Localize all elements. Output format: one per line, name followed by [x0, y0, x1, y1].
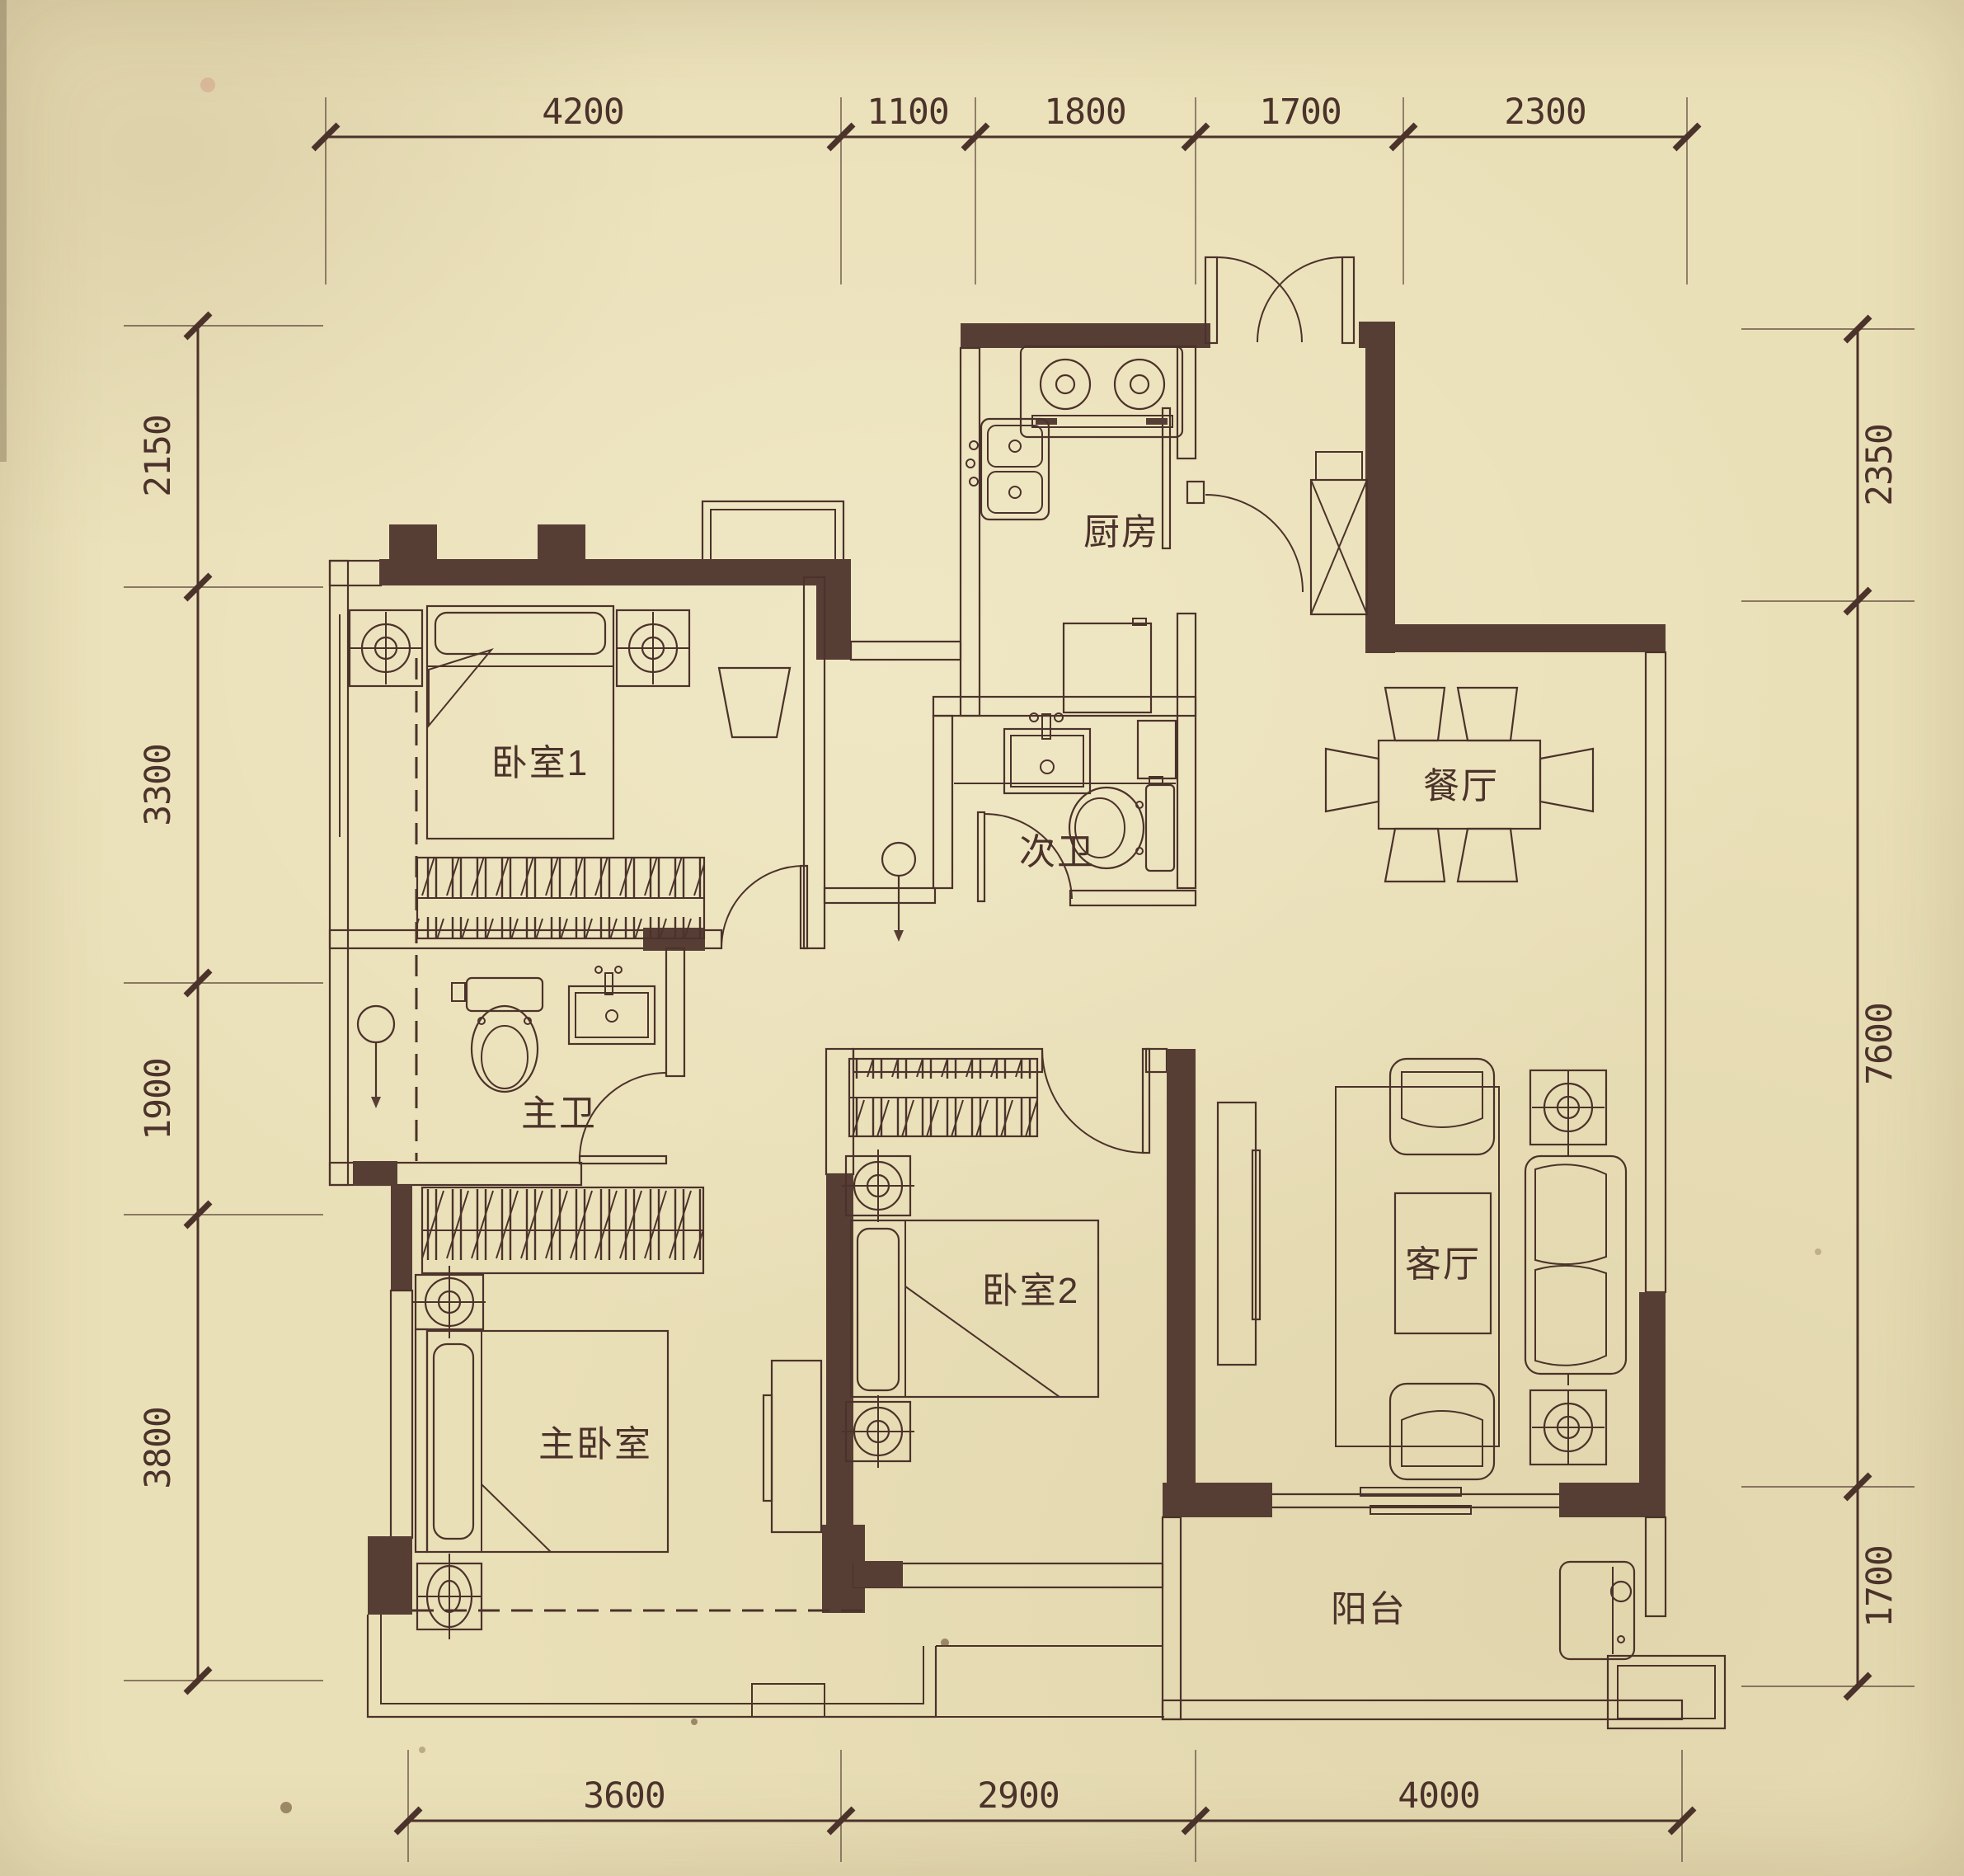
chair-icon [1385, 829, 1445, 882]
floor-plan-drawing: 4200 1100 1800 1700 2300 3600 2900 4000 [0, 0, 1964, 1876]
side-table-icon [1530, 1070, 1606, 1145]
dim-top-2: 1100 [867, 92, 949, 133]
room-label-balcony: 阳台 [1331, 1589, 1407, 1629]
toilet-icon-master [452, 978, 543, 1092]
side-table-icon [1530, 1390, 1606, 1465]
washing-machine-icon [1560, 1562, 1634, 1659]
washbasin-icon-secondary [1004, 713, 1090, 793]
bedroom1-door-arc [721, 866, 807, 948]
right-dimension-ruler: 2350 7600 1700 [1741, 317, 1915, 1699]
stove-icon [1021, 346, 1182, 437]
armchair-icon [1390, 1384, 1494, 1479]
top-dimension-ruler: 4200 1100 1800 1700 2300 [313, 92, 1699, 284]
fridge-icon [1064, 618, 1151, 712]
shower-symbol [882, 843, 915, 942]
left-dimension-ruler: 2150 3300 1900 3800 [124, 313, 323, 1693]
wall-layer [330, 322, 1725, 1728]
chair-icon [1326, 749, 1379, 811]
dim-top-5: 2300 [1504, 92, 1586, 133]
room-label-kitchen: 厨房 [1083, 512, 1159, 552]
dim-left-4: 3800 [138, 1407, 179, 1489]
top-ruler-ticks [313, 97, 1699, 284]
wardrobe-icon-bedroom2 [849, 1059, 1037, 1136]
tv-cabinet-icon-master [764, 1361, 821, 1532]
nightstand-icon [350, 610, 422, 686]
nightstand-icon [413, 1266, 486, 1338]
bath-cabinet-icon [1138, 721, 1176, 778]
dim-right-1: 2350 [1859, 424, 1901, 506]
dim-top-4: 1700 [1259, 92, 1341, 133]
room-label-bath-master: 主卫 [521, 1093, 597, 1134]
wardrobe-icon-bedroom1 [417, 858, 704, 938]
paper-edge-shadow [0, 0, 7, 462]
duct-shaft-icon [1311, 452, 1367, 614]
dim-bottom-3: 4000 [1398, 1775, 1480, 1817]
chair-icon [1458, 688, 1517, 741]
dim-bottom-2: 2900 [977, 1775, 1060, 1817]
nightstand-icon-bay [416, 1554, 482, 1639]
room-label-living: 客厅 [1405, 1244, 1481, 1285]
bedroom2-door-arc [1042, 1049, 1149, 1153]
room-label-bedroom2: 卧室2 [982, 1271, 1079, 1311]
kitchen-door-arc [1163, 408, 1303, 592]
shower-head-icon [358, 1006, 394, 1108]
chair-icon [1458, 829, 1517, 882]
room-label-dining: 餐厅 [1423, 766, 1499, 806]
balcony-sliding-door [1272, 1488, 1559, 1514]
chair-icon [1540, 749, 1593, 811]
room-label-master-bedroom: 主卧室 [538, 1424, 652, 1465]
chair-icon [1385, 688, 1445, 741]
sofa-set-icon [1336, 1059, 1626, 1479]
floor-plan-page: 4200 1100 1800 1700 2300 3600 2900 4000 [0, 0, 1964, 1876]
dim-top-3: 1800 [1044, 92, 1126, 133]
dim-right-2: 7600 [1859, 1003, 1901, 1085]
entry-stool-icon [719, 668, 790, 737]
room-label-bath-secondary: 次卫 [1019, 832, 1095, 872]
washbasin-icon-master [569, 966, 655, 1044]
entry-double-door [1205, 257, 1354, 343]
dim-left-1: 2150 [138, 415, 179, 497]
dim-left-3: 1900 [138, 1058, 179, 1140]
wardrobe-icon-master [422, 1187, 703, 1273]
dim-left-2: 3300 [138, 744, 179, 826]
nightstand-icon [617, 610, 689, 686]
tv-cabinet-icon-living [1218, 1103, 1260, 1365]
sofa-icon [1525, 1145, 1626, 1385]
balcony-step [1608, 1656, 1725, 1728]
armchair-icon [1390, 1059, 1494, 1154]
room-label-bedroom1: 卧室1 [491, 743, 589, 783]
bottom-dimension-ruler: 3600 2900 4000 [396, 1750, 1694, 1862]
bed-icon-bedroom1 [427, 606, 613, 839]
dim-right-3: 1700 [1859, 1545, 1901, 1628]
dim-top-1: 4200 [542, 92, 624, 133]
dim-bottom-1: 3600 [583, 1775, 665, 1817]
bay-window [368, 1610, 1164, 1717]
